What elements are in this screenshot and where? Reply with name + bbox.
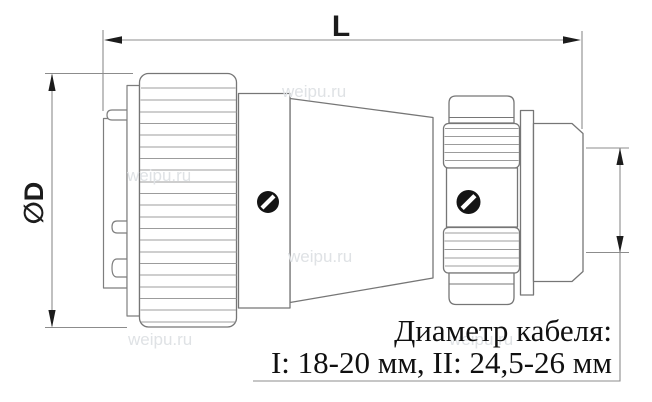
watermark-text: weipu.ru — [127, 330, 192, 349]
arrowhead-left-icon — [104, 36, 122, 44]
set-screw-right-icon — [457, 190, 481, 214]
cable-note-line1: Диаметр кабеля: — [394, 313, 612, 348]
set-screw-left-icon — [257, 191, 279, 213]
connector-drawing — [104, 74, 584, 328]
cable-note-line2: I: 18-20 мм, II: 24,5-26 мм — [271, 345, 612, 380]
body-cone — [290, 99, 433, 303]
watermark-text: weipu.ru — [281, 82, 346, 101]
arrowhead-down-icon — [48, 310, 55, 328]
arrowhead-up-icon — [48, 74, 55, 92]
watermark-text: weipu.ru — [126, 166, 191, 185]
drawing-canvas: weipu.ru weipu.ru weipu.ru weipu.ru weip… — [0, 0, 652, 402]
cable-outlet-disc — [521, 111, 534, 296]
bayonet-tab-middle — [112, 221, 127, 233]
connector-technical-drawing: weipu.ru weipu.ru weipu.ru weipu.ru weip… — [0, 0, 652, 402]
front-flange — [127, 86, 140, 317]
cable-outlet-cylinder — [534, 124, 584, 282]
watermark-text: weipu.ru — [287, 247, 352, 266]
clamp-nut-bottom-cap — [449, 273, 514, 305]
clamp-nut-top-cap — [449, 96, 514, 123]
length-dimension-label: L — [332, 10, 350, 43]
arrowhead-up-icon — [616, 148, 623, 165]
clamp-nut-knurl-band-upper — [444, 124, 520, 169]
coupling-ring-knurling — [140, 88, 237, 322]
bayonet-tab-top — [107, 110, 127, 120]
arrowhead-down-icon — [616, 236, 623, 253]
bayonet-tab-bottom — [112, 259, 127, 277]
arrowhead-right-icon — [563, 36, 581, 44]
clamp-nut — [444, 96, 520, 305]
diameter-dimension-label: ∅D — [19, 182, 49, 225]
cable-note: Диаметр кабеля: I: 18-20 мм, II: 24,5-26… — [271, 313, 612, 380]
clamp-nut-body — [447, 168, 518, 227]
